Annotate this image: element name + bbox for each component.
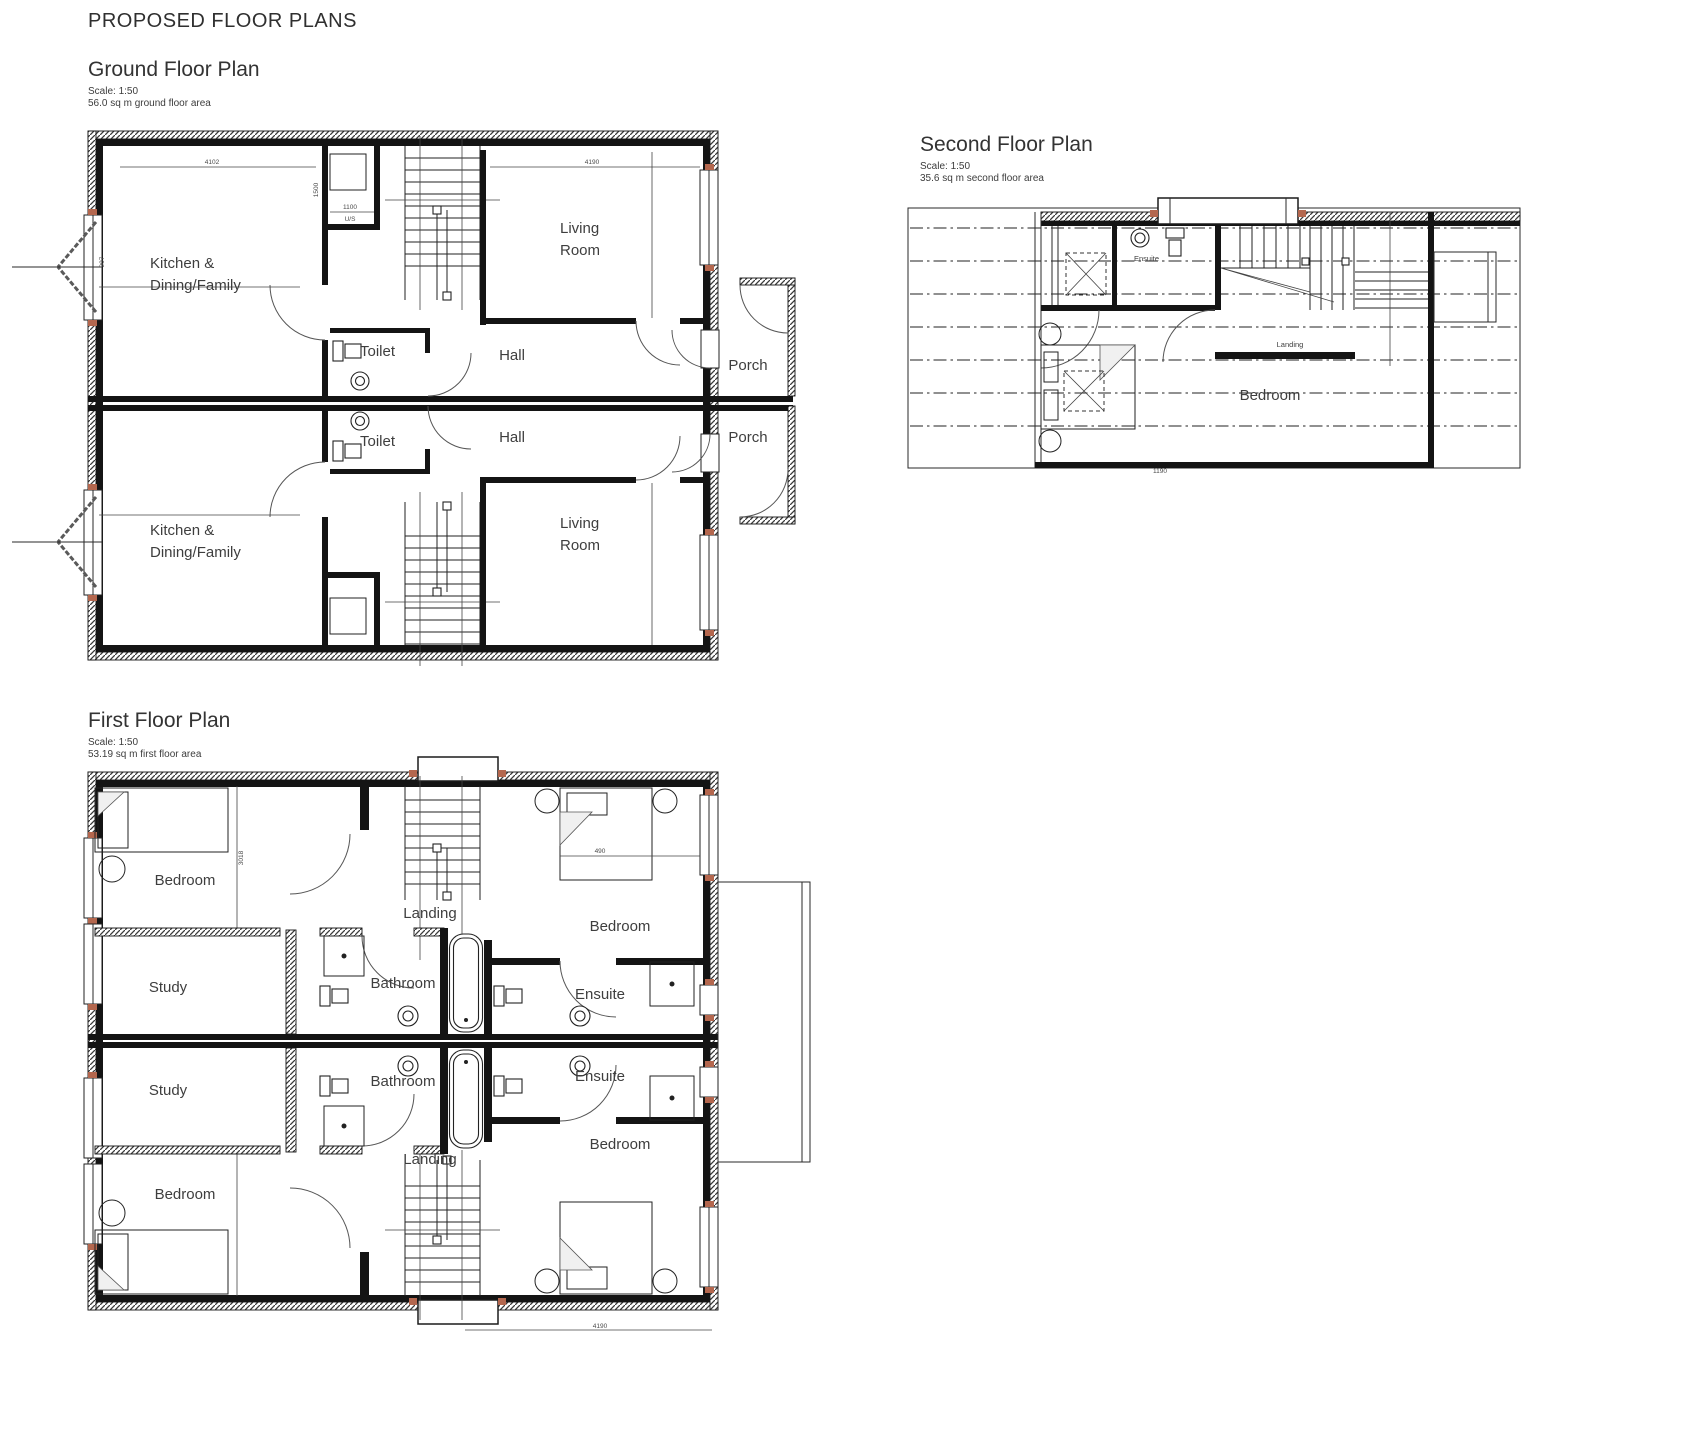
- second-landing-walls: [1041, 310, 1355, 368]
- exterior-walls: [88, 772, 718, 1310]
- room-label-ensuite-top: Ensuite: [575, 986, 625, 1003]
- room-label-hall-top: Hall: [499, 347, 525, 364]
- window-right-bottom: [700, 529, 718, 636]
- dim-second-bottom: 1190: [1153, 468, 1167, 475]
- room-label-bedroom-tr: Bedroom: [590, 918, 651, 935]
- dim-store-note: U/S: [345, 216, 357, 223]
- chimney-top: [409, 757, 506, 781]
- room-label-living-bottom-1: Living: [560, 515, 599, 532]
- floor-plans-drawing: Kitchen & Dining/Family Living Room Toil…: [0, 0, 1703, 1440]
- room-label-landing-top: Landing: [403, 905, 456, 922]
- porch-canopy-outline: [718, 882, 810, 1162]
- room-label-bedroom-tl: Bedroom: [155, 872, 216, 889]
- second-ensuite: [1041, 226, 1215, 311]
- first-floor-plan: Bedroom Study Landing Bedroom Bathroom E…: [84, 757, 810, 1330]
- exterior-walls: [88, 131, 718, 660]
- door-arc-landing-top: [290, 834, 350, 894]
- landing-wall-top: [286, 930, 296, 1034]
- porch-bottom: [672, 406, 795, 524]
- bedroom-study-wall-bottom: [95, 1146, 280, 1154]
- room-label-landing-bottom: Landing: [403, 1151, 456, 1168]
- dim-bedroom-height: 3018: [238, 850, 245, 865]
- landing-wall-bottom: [286, 1048, 296, 1152]
- ground-room-labels: Kitchen & Dining/Family Living Room Toil…: [150, 220, 768, 561]
- room-label-study-bottom: Study: [149, 1082, 188, 1099]
- dim-bed-width: 490: [595, 848, 606, 855]
- window-left-top: [12, 209, 102, 326]
- ground-dimensions: 4102 4190 1100 U/S 1500 907: [99, 159, 700, 267]
- bathtub-bottom: [450, 1050, 483, 1148]
- dim-ground-top-left: 4102: [205, 159, 220, 166]
- dim-left-wall: 907: [99, 256, 106, 267]
- store-cupboard-bottom: [322, 572, 380, 645]
- room-label-bedroom-bl: Bedroom: [155, 1186, 216, 1203]
- room-label-hall-bottom: Hall: [499, 429, 525, 446]
- room-label-toilet-top: Toilet: [360, 343, 396, 360]
- dim-store-width: 1100: [343, 204, 357, 211]
- window-left-bottom: [12, 484, 102, 601]
- room-label-ensuite-bottom: Ensuite: [575, 1068, 625, 1085]
- room-label-study-top: Study: [149, 979, 188, 996]
- chimney-bottom: [409, 1298, 506, 1324]
- bedroom-study-wall-top: [95, 928, 280, 936]
- staircase-first-bottom: [385, 1150, 500, 1320]
- room-label-kitchen-bottom-2: Dining/Family: [150, 544, 241, 561]
- door-arc-landing-bottom: [290, 1188, 350, 1248]
- dim-ground-top-right: 4190: [585, 159, 600, 166]
- porch-top: [672, 278, 795, 396]
- room-label-ensuite-second: Ensuite: [1134, 254, 1159, 263]
- room-label-bedroom-br: Bedroom: [590, 1136, 651, 1153]
- second-staircase: [1215, 212, 1428, 366]
- dim-first-bottom: 4190: [593, 1323, 608, 1330]
- bed-top-right: [535, 788, 700, 880]
- room-label-living-bottom-2: Room: [560, 537, 600, 554]
- room-label-kitchen-top-2: Dining/Family: [150, 277, 241, 294]
- party-wall: [88, 396, 793, 411]
- ensuite-bottom-fixtures: [494, 1056, 694, 1120]
- drawing-sheet: PROPOSED FLOOR PLANS Ground Floor Plan S…: [0, 0, 1703, 1440]
- room-label-bathroom-top: Bathroom: [370, 975, 435, 992]
- room-label-bedroom-second: Bedroom: [1240, 387, 1301, 404]
- bed-top-left: [95, 788, 228, 882]
- landing-stub-top: [360, 786, 369, 830]
- room-label-porch-top: Porch: [728, 357, 767, 374]
- room-label-porch-bottom: Porch: [728, 429, 767, 446]
- room-label-kitchen-bottom-1: Kitchen &: [150, 522, 214, 539]
- bathroom-bottom-fixtures: [320, 1056, 418, 1146]
- bed-bottom-left: [95, 1200, 228, 1294]
- toilet-room-top: [330, 328, 471, 396]
- room-label-toilet-bottom: Toilet: [360, 433, 396, 450]
- ground-floor-plan: Kitchen & Dining/Family Living Room Toil…: [12, 131, 795, 666]
- toilet-room-bottom: [330, 406, 471, 474]
- roof-dash-dot-lines: [910, 228, 1518, 426]
- room-label-living-top-1: Living: [560, 220, 599, 237]
- dim-store-height: 1500: [313, 182, 320, 197]
- chimney-second: [1150, 198, 1306, 224]
- second-bed: [1039, 323, 1135, 452]
- second-floor-plan: Ensuite Landing Bedroom 1190: [908, 198, 1520, 475]
- party-wall: [88, 1034, 718, 1048]
- room-label-bathroom-bottom: Bathroom: [370, 1073, 435, 1090]
- dormer-outline: [1434, 252, 1496, 322]
- window-right-top: [700, 164, 718, 271]
- room-label-kitchen-top-1: Kitchen &: [150, 255, 214, 272]
- bed-bottom-right: [535, 1202, 677, 1294]
- room-label-landing-second: Landing: [1277, 340, 1304, 349]
- room-label-living-top-2: Room: [560, 242, 600, 259]
- landing-stub-bottom: [360, 1252, 369, 1296]
- first-floor-windows: [84, 789, 718, 1293]
- bathtub-top: [450, 934, 483, 1032]
